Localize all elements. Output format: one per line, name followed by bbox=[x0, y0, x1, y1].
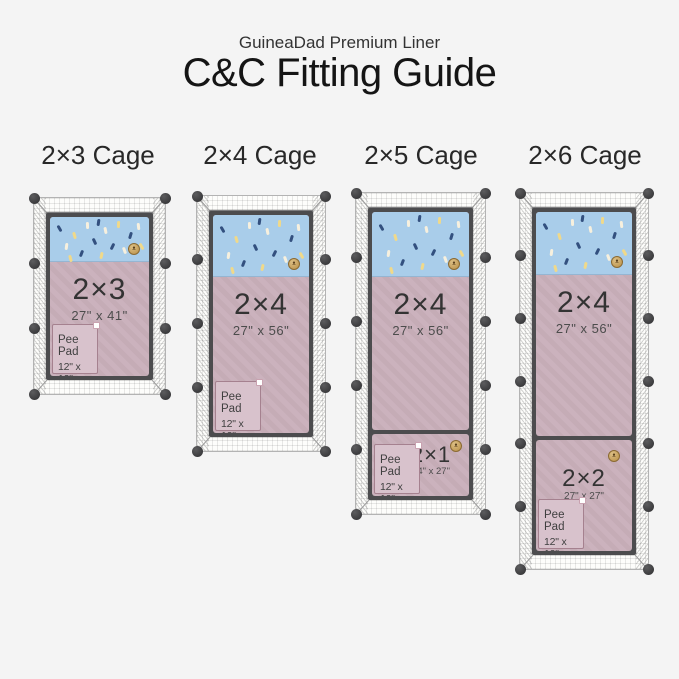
confetti-speck bbox=[443, 255, 448, 263]
connector-dot-icon bbox=[351, 316, 362, 327]
connector-dot-icon bbox=[192, 382, 203, 393]
confetti-speck bbox=[86, 222, 89, 229]
confetti-speck bbox=[457, 221, 461, 228]
pee-pad: Pee Pad 12" x 12" bbox=[538, 499, 584, 549]
pee-pad-dims: 12" x 12" bbox=[380, 481, 419, 496]
liner-2x5: 2×4 27" x 56" 2×1 14" x 27" Pee Pad 12" … bbox=[372, 212, 469, 496]
page-title: C&C Fitting Guide bbox=[0, 51, 679, 96]
confetti-speck bbox=[72, 232, 77, 240]
connector-dot-icon bbox=[643, 250, 654, 261]
confetti-speck bbox=[570, 219, 573, 226]
connector-dot-icon bbox=[515, 438, 526, 449]
confetti-speck bbox=[122, 247, 127, 255]
confetti-speck bbox=[227, 251, 231, 258]
liner-size-dims: 27" x 56" bbox=[213, 323, 309, 338]
connector-dot-icon bbox=[351, 252, 362, 263]
confetti-speck bbox=[247, 222, 250, 229]
connector-dot-icon bbox=[515, 501, 526, 512]
pee-pad-dims: 12" x 12" bbox=[58, 361, 97, 376]
confetti-speck bbox=[564, 258, 569, 266]
connector-dot-icon bbox=[320, 446, 331, 457]
confetti-speck bbox=[117, 220, 120, 227]
liner-piece-2x4: 2×4 27" x 56" bbox=[536, 212, 632, 436]
page-subtitle: GuineaDad Premium Liner bbox=[0, 33, 679, 53]
connector-dot-icon bbox=[160, 193, 171, 204]
connector-dot-icon bbox=[643, 438, 654, 449]
cage-title-2x5: 2×5 Cage bbox=[336, 140, 506, 171]
confetti-speck bbox=[594, 248, 600, 256]
confetti-speck bbox=[400, 259, 405, 267]
confetti-speck bbox=[449, 233, 454, 241]
connector-dot-icon bbox=[480, 188, 491, 199]
liner-body: 2×4 27" x 56" bbox=[372, 277, 469, 430]
confetti-speck bbox=[459, 250, 465, 258]
liner-piece-2x4: 2×4 27" x 56" Pee Pad 12" x 12" bbox=[213, 215, 309, 433]
liner-piece-2x4: 2×4 27" x 56" bbox=[372, 212, 469, 430]
confetti-speck bbox=[412, 242, 418, 250]
connector-dot-icon bbox=[515, 188, 526, 199]
connector-dot-icon bbox=[643, 188, 654, 199]
cage-inner-frame: 2×4 27" x 56" 2×1 14" x 27" Pee Pad 12" … bbox=[368, 207, 473, 500]
confetti-speck bbox=[297, 223, 301, 230]
confetti-speck bbox=[64, 243, 68, 250]
connector-dot-icon bbox=[320, 382, 331, 393]
pee-pad-label: Pee Pad bbox=[380, 454, 419, 478]
confetti-speck bbox=[390, 267, 395, 275]
liner-fleece-top bbox=[372, 212, 469, 277]
confetti-speck bbox=[386, 250, 390, 257]
cage-inner-frame: 2×4 27" x 56" 2×2 27" x 27" Pee Pad 12" … bbox=[532, 207, 636, 555]
pee-pad-tab bbox=[256, 379, 263, 386]
confetti-speck bbox=[96, 219, 100, 226]
confetti-speck bbox=[128, 231, 133, 239]
connector-dot-icon bbox=[192, 318, 203, 329]
liner-2x6: 2×4 27" x 56" 2×2 27" x 27" Pee Pad 12" … bbox=[536, 212, 632, 551]
cage-title-2x3: 2×3 Cage bbox=[13, 140, 183, 171]
connector-dot-icon bbox=[29, 323, 40, 334]
cage-title-2x4: 2×4 Cage bbox=[175, 140, 345, 171]
connector-dot-icon bbox=[515, 564, 526, 575]
confetti-speck bbox=[378, 223, 384, 231]
confetti-speck bbox=[253, 244, 259, 252]
confetti-speck bbox=[425, 226, 429, 233]
connector-dot-icon bbox=[351, 444, 362, 455]
confetti-speck bbox=[260, 264, 264, 271]
pee-pad-tab bbox=[93, 322, 100, 329]
liner-size-name: 2×4 bbox=[536, 287, 632, 319]
confetti-speck bbox=[79, 249, 84, 257]
connector-dot-icon bbox=[643, 313, 654, 324]
connector-dot-icon bbox=[515, 376, 526, 387]
confetti-speck bbox=[620, 221, 624, 228]
confetti-speck bbox=[612, 232, 617, 240]
cage-diagram-2x3: 2×3 27" x 41" Pee Pad 12" x 12" bbox=[33, 197, 166, 395]
confetti-speck bbox=[542, 223, 548, 231]
confetti-speck bbox=[583, 261, 587, 268]
pee-pad: Pee Pad 12" x 12" bbox=[215, 381, 261, 431]
confetti-speck bbox=[265, 228, 269, 235]
pee-pad-dims: 12" x 12" bbox=[221, 418, 260, 433]
connector-dot-icon bbox=[29, 389, 40, 400]
connector-dot-icon bbox=[29, 193, 40, 204]
connector-dot-icon bbox=[480, 509, 491, 520]
confetti-speck bbox=[557, 233, 562, 241]
connector-dot-icon bbox=[320, 318, 331, 329]
liner-size-name: 2×2 bbox=[536, 466, 632, 491]
confetti-speck bbox=[219, 226, 225, 234]
liner-2x3: 2×3 27" x 41" Pee Pad 12" x 12" bbox=[50, 217, 149, 376]
confetti-speck bbox=[68, 255, 73, 263]
liner-size-dims: 27" x 41" bbox=[50, 308, 149, 323]
guineadad-logo-icon bbox=[450, 440, 462, 452]
connector-dot-icon bbox=[480, 252, 491, 263]
pee-pad-label: Pee Pad bbox=[221, 391, 260, 415]
confetti-speck bbox=[550, 249, 554, 256]
confetti-speck bbox=[104, 226, 108, 233]
confetti-speck bbox=[234, 235, 239, 243]
connector-dot-icon bbox=[160, 323, 171, 334]
cage-diagram-2x4: 2×4 27" x 56" Pee Pad 12" x 12" bbox=[196, 195, 326, 452]
fitting-guide-infographic: GuineaDad Premium Liner C&C Fitting Guid… bbox=[0, 0, 679, 679]
pee-pad-dims: 12" x 12" bbox=[544, 536, 583, 551]
connector-dot-icon bbox=[192, 446, 203, 457]
confetti-speck bbox=[407, 220, 410, 227]
pee-pad-label: Pee Pad bbox=[544, 509, 583, 533]
liner-size-dims: 27" x 56" bbox=[536, 321, 632, 336]
confetti-speck bbox=[289, 235, 294, 243]
confetti-speck bbox=[622, 249, 628, 257]
connector-dot-icon bbox=[643, 564, 654, 575]
confetti-speck bbox=[601, 217, 604, 224]
confetti-speck bbox=[438, 217, 441, 224]
connector-dot-icon bbox=[515, 250, 526, 261]
confetti-speck bbox=[91, 238, 97, 246]
confetti-speck bbox=[431, 249, 437, 257]
liner-piece-2x3: 2×3 27" x 41" Pee Pad 12" x 12" bbox=[50, 217, 149, 376]
liner-fleece-top bbox=[50, 217, 149, 262]
pee-pad-label: Pee Pad bbox=[58, 334, 97, 358]
connector-dot-icon bbox=[192, 191, 203, 202]
guineadad-logo-icon bbox=[288, 258, 300, 270]
connector-dot-icon bbox=[351, 509, 362, 520]
connector-dot-icon bbox=[480, 444, 491, 455]
confetti-speck bbox=[278, 220, 281, 227]
cage-diagram-2x6: 2×4 27" x 56" 2×2 27" x 27" Pee Pad 12" … bbox=[519, 192, 649, 570]
connector-dot-icon bbox=[29, 258, 40, 269]
liner-piece-2x1: 2×1 14" x 27" Pee Pad 12" x 12" bbox=[372, 434, 469, 496]
connector-dot-icon bbox=[160, 258, 171, 269]
confetti-speck bbox=[581, 215, 585, 222]
pee-pad: Pee Pad 12" x 12" bbox=[374, 444, 420, 494]
confetti-speck bbox=[230, 267, 235, 275]
liner-body: 2×4 27" x 56" bbox=[536, 275, 632, 436]
pee-pad-tab bbox=[579, 497, 586, 504]
cage-inner-frame: 2×4 27" x 56" Pee Pad 12" x 12" bbox=[209, 210, 313, 437]
connector-dot-icon bbox=[320, 254, 331, 265]
confetti-speck bbox=[258, 218, 262, 225]
liner-size-name: 2×3 bbox=[50, 274, 149, 306]
liner-piece-2x2: 2×2 27" x 27" Pee Pad 12" x 12" bbox=[536, 440, 632, 551]
cage-diagram-2x5: 2×4 27" x 56" 2×1 14" x 27" Pee Pad 12" … bbox=[355, 192, 486, 515]
liner-size-name: 2×4 bbox=[213, 289, 309, 321]
connector-dot-icon bbox=[192, 254, 203, 265]
confetti-speck bbox=[241, 260, 246, 268]
confetti-speck bbox=[271, 250, 277, 258]
liner-size-name: 2×4 bbox=[372, 289, 469, 321]
connector-dot-icon bbox=[351, 188, 362, 199]
pee-pad: Pee Pad 12" x 12" bbox=[52, 324, 98, 374]
guineadad-logo-icon bbox=[128, 243, 140, 255]
cage-inner-frame: 2×3 27" x 41" Pee Pad 12" x 12" bbox=[46, 212, 153, 380]
guineadad-logo-icon bbox=[608, 450, 620, 462]
cage-title-2x6: 2×6 Cage bbox=[500, 140, 670, 171]
connector-dot-icon bbox=[320, 191, 331, 202]
guineadad-logo-icon bbox=[611, 256, 623, 268]
liner-fleece-top bbox=[536, 212, 632, 275]
confetti-speck bbox=[588, 225, 592, 232]
pee-pad-tab bbox=[415, 442, 422, 449]
liner-fleece-top bbox=[213, 215, 309, 277]
confetti-speck bbox=[420, 263, 424, 270]
connector-dot-icon bbox=[480, 380, 491, 391]
connector-dot-icon bbox=[480, 316, 491, 327]
confetti-speck bbox=[56, 225, 62, 233]
confetti-speck bbox=[299, 251, 305, 259]
connector-dot-icon bbox=[351, 380, 362, 391]
guineadad-logo-icon bbox=[448, 258, 460, 270]
liner-2x4: 2×4 27" x 56" Pee Pad 12" x 12" bbox=[213, 215, 309, 433]
confetti-speck bbox=[417, 215, 421, 222]
liner-size-dims: 27" x 56" bbox=[372, 323, 469, 338]
connector-dot-icon bbox=[515, 313, 526, 324]
confetti-speck bbox=[110, 242, 116, 250]
confetti-speck bbox=[393, 233, 398, 241]
confetti-speck bbox=[99, 252, 103, 259]
confetti-speck bbox=[576, 241, 582, 249]
confetti-speck bbox=[553, 265, 558, 273]
connector-dot-icon bbox=[160, 389, 171, 400]
confetti-speck bbox=[137, 223, 141, 230]
connector-dot-icon bbox=[643, 501, 654, 512]
connector-dot-icon bbox=[643, 376, 654, 387]
